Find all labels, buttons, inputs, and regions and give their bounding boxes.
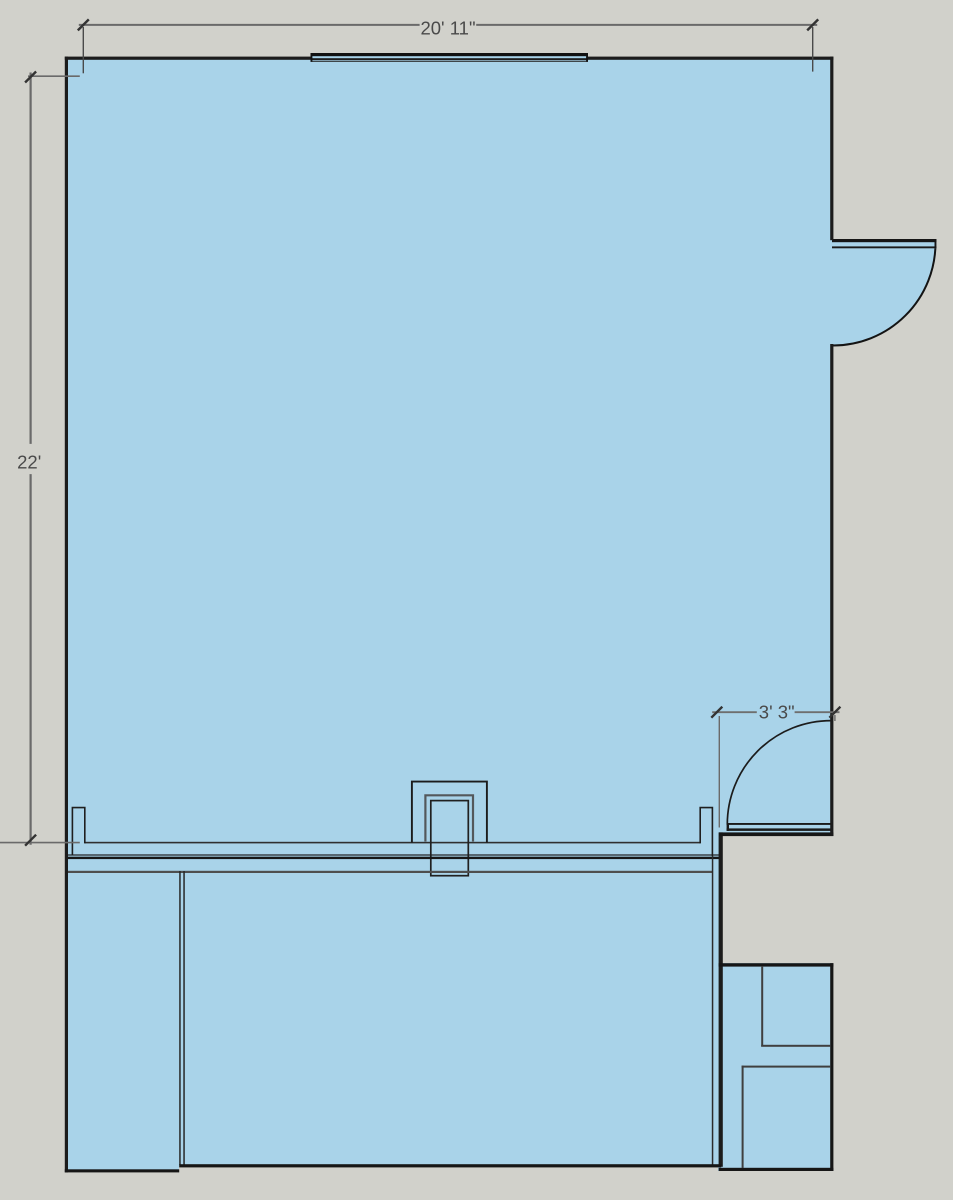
- svg-text:20' 11": 20' 11": [420, 18, 475, 39]
- svg-text:22': 22': [17, 451, 41, 472]
- svg-text:3' 3": 3' 3": [759, 701, 795, 722]
